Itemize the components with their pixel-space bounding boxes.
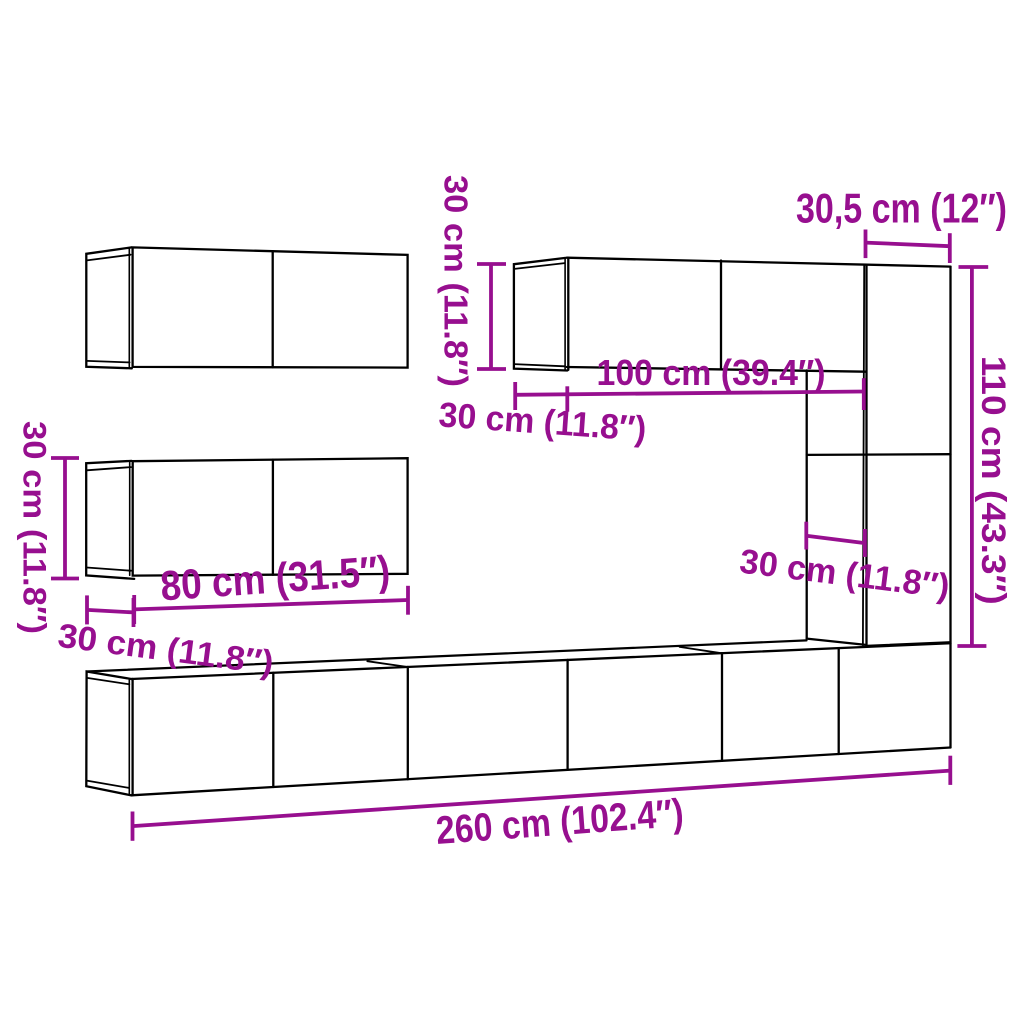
svg-text:100 cm (39.4″): 100 cm (39.4″) xyxy=(597,352,826,393)
svg-text:30,5 cm (12″): 30,5 cm (12″) xyxy=(796,185,1007,232)
svg-text:30 cm (11.8″): 30 cm (11.8″) xyxy=(437,395,647,448)
svg-text:260 cm (102.4″): 260 cm (102.4″) xyxy=(434,791,685,853)
svg-text:30 cm (11.8″): 30 cm (11.8″) xyxy=(17,421,53,634)
svg-text:110 cm (43.3″): 110 cm (43.3″) xyxy=(974,356,1012,605)
svg-text:30 cm (11.8″): 30 cm (11.8″) xyxy=(738,543,952,606)
svg-text:30 cm (11.8″): 30 cm (11.8″) xyxy=(438,175,475,387)
